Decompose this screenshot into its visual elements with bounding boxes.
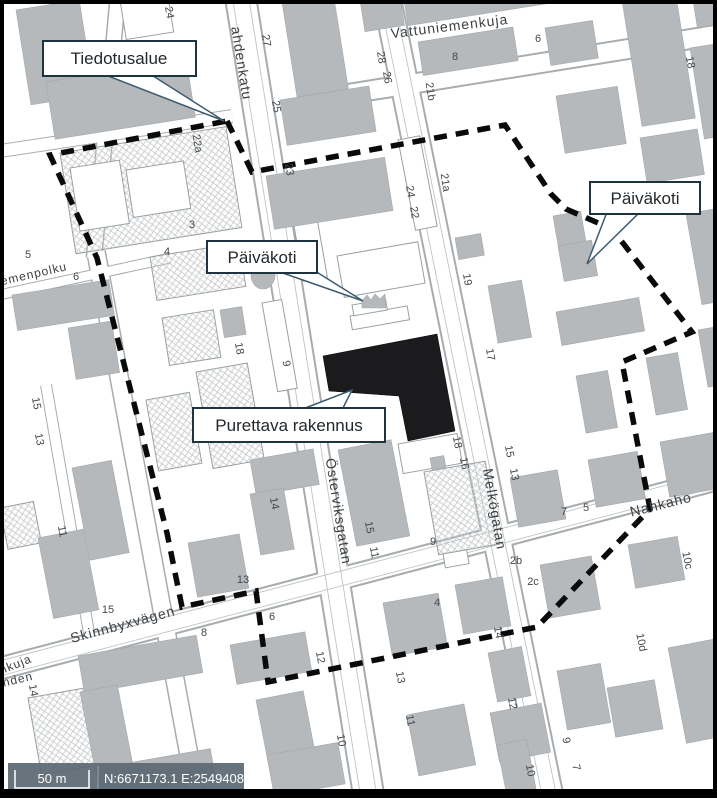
- building: [628, 536, 685, 588]
- house-number: 24: [162, 6, 176, 20]
- house-number: 16: [457, 456, 471, 470]
- house-number: 3: [189, 219, 195, 231]
- house-number: 23: [282, 163, 296, 177]
- house-number: 14: [267, 496, 281, 510]
- house-number: 2c: [527, 576, 539, 588]
- house-number: 9: [559, 736, 572, 744]
- building: [407, 704, 476, 776]
- house-number: 18: [683, 55, 697, 69]
- house-number: 15: [502, 444, 516, 458]
- building: [540, 556, 601, 618]
- building: [588, 451, 646, 507]
- hatched-area: [0, 502, 41, 550]
- house-number: 28: [374, 51, 388, 65]
- house-number: 13: [32, 432, 46, 446]
- house-number: 7: [561, 506, 567, 518]
- building: [280, 86, 376, 146]
- building: [282, 0, 348, 97]
- building: [455, 233, 484, 259]
- callout-label: Päiväkoti: [228, 248, 297, 267]
- house-number: 26: [380, 71, 394, 85]
- house-number: 13: [393, 670, 407, 684]
- house-number: 6: [73, 271, 79, 283]
- building: [558, 240, 598, 281]
- building: [230, 632, 312, 685]
- house-number: 21b: [423, 82, 438, 102]
- house-number: 10: [334, 733, 348, 747]
- building: [556, 297, 645, 345]
- coordinate-readout: N:6671173.1 E:25494082.0: [104, 771, 262, 786]
- house-number: 4: [434, 597, 440, 609]
- scale-bar: 50 m N:6671173.1 E:25494082.0: [8, 763, 262, 793]
- house-number: 15: [362, 520, 376, 534]
- building: [646, 352, 688, 415]
- building: [68, 321, 120, 379]
- house-number: 18: [450, 435, 464, 449]
- house-number: 10d: [633, 632, 648, 652]
- house-number: 11: [367, 546, 381, 560]
- house-number: 5: [25, 249, 31, 261]
- building: [668, 639, 717, 743]
- daycare-building: [362, 294, 386, 308]
- house-number: 14: [26, 683, 40, 697]
- building-outline: [126, 161, 191, 217]
- house-number: 10: [523, 763, 537, 777]
- house-number: 22: [407, 206, 421, 220]
- map-viewer: ahdenkatuVattuniemenkujaÖsterviksgatanMe…: [0, 0, 717, 798]
- house-number: 19: [460, 273, 474, 287]
- house-number: 6: [535, 33, 541, 45]
- building: [188, 534, 249, 597]
- house-number: 25: [269, 100, 283, 114]
- house-number: 14: [491, 625, 505, 639]
- building: [607, 680, 663, 738]
- callout-label: Purettava rakennus: [215, 416, 362, 435]
- building-outline: [337, 242, 425, 298]
- house-number: 13: [237, 574, 249, 586]
- house-number: 11: [55, 525, 69, 539]
- building: [576, 370, 618, 433]
- house-number: 8: [452, 51, 458, 63]
- building: [220, 307, 246, 338]
- house-number: 8: [201, 627, 207, 639]
- building: [660, 432, 717, 497]
- map-canvas: ahdenkatuVattuniemenkujaÖsterviksgatanMe…: [0, 0, 717, 798]
- building: [488, 280, 532, 343]
- building: [545, 20, 598, 65]
- building: [557, 663, 611, 730]
- house-number: 4: [164, 246, 170, 258]
- map-frame-bottom: [0, 789, 717, 798]
- house-number: 18: [232, 342, 246, 356]
- building: [430, 456, 446, 470]
- house-number: 15: [29, 396, 43, 410]
- hatched-area: [162, 310, 221, 366]
- callout-label: Päiväkoti: [611, 189, 680, 208]
- house-number: 13: [507, 467, 521, 481]
- house-number: 9: [430, 536, 436, 548]
- scale-distance-label: 50 m: [38, 771, 67, 786]
- building: [640, 129, 704, 184]
- callout-label: Tiedotusalue: [71, 49, 168, 68]
- house-number: 12: [505, 696, 519, 710]
- house-number: 24: [403, 185, 417, 199]
- house-number: 15: [102, 604, 114, 616]
- house-number: 2b: [510, 555, 522, 567]
- house-number: 17: [483, 348, 497, 362]
- building: [686, 209, 717, 304]
- building: [556, 86, 626, 153]
- house-number: 5: [583, 502, 589, 514]
- house-number: 27: [259, 34, 273, 48]
- house-number: 7: [569, 763, 582, 771]
- house-number: 12: [313, 650, 327, 664]
- callout-paivakoti-right: Päiväkoti: [587, 182, 700, 264]
- house-number: 11: [403, 714, 417, 728]
- house-number: 6: [269, 611, 275, 623]
